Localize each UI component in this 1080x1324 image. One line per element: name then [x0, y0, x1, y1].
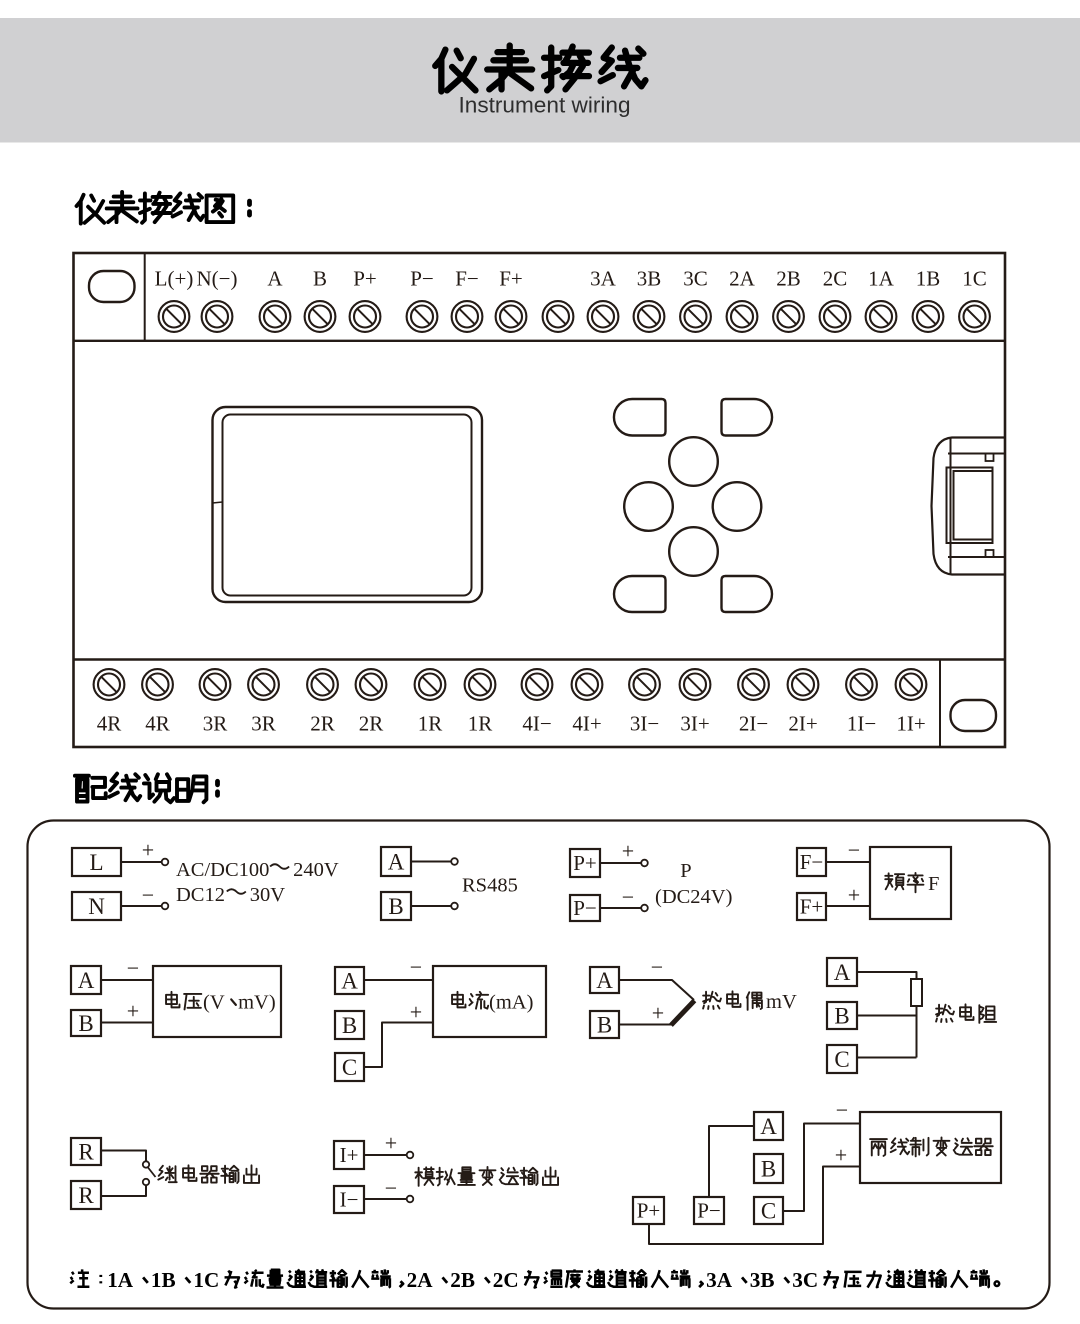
- svg-text:B: B: [834, 1003, 849, 1028]
- svg-text:R: R: [78, 1183, 94, 1208]
- svg-text:1I+: 1I+: [896, 712, 925, 736]
- svg-text:1C: 1C: [962, 267, 987, 291]
- svg-text:I−: I−: [340, 1188, 359, 1212]
- svg-text:3A: 3A: [590, 267, 617, 291]
- svg-text:4R: 4R: [97, 712, 122, 736]
- svg-text:−: −: [142, 883, 154, 908]
- svg-text:C: C: [834, 1047, 849, 1072]
- svg-text:2I−: 2I−: [739, 712, 768, 736]
- svg-text:B: B: [342, 1013, 357, 1038]
- svg-text:−: −: [385, 1176, 397, 1201]
- svg-text:+: +: [652, 1001, 664, 1026]
- svg-text:−: −: [651, 955, 663, 980]
- svg-text:−: −: [622, 885, 634, 910]
- svg-text:30V: 30V: [250, 884, 285, 906]
- svg-text:2B: 2B: [776, 267, 801, 291]
- svg-text:A: A: [596, 968, 613, 993]
- svg-text:3I+: 3I+: [680, 712, 709, 736]
- svg-text:L: L: [89, 850, 103, 875]
- svg-text:B: B: [597, 1012, 612, 1037]
- svg-text:P+: P+: [353, 267, 377, 291]
- svg-text:P−: P−: [573, 896, 597, 920]
- svg-text:A: A: [341, 968, 358, 993]
- svg-text:+: +: [835, 1143, 847, 1168]
- svg-text:F−: F−: [800, 850, 824, 874]
- svg-text:+: +: [848, 883, 860, 908]
- svg-text:2C: 2C: [493, 1268, 519, 1292]
- svg-text:F−: F−: [455, 267, 479, 291]
- svg-text:4I−: 4I−: [522, 712, 551, 736]
- svg-text:R: R: [78, 1139, 94, 1164]
- svg-text:2R: 2R: [359, 712, 384, 736]
- svg-text:(mA): (mA): [489, 992, 533, 1014]
- svg-text:DC12: DC12: [176, 884, 225, 906]
- svg-text:3A: 3A: [706, 1268, 733, 1292]
- svg-text:P+: P+: [637, 1199, 661, 1223]
- svg-text:240V: 240V: [293, 859, 339, 881]
- svg-text:1R: 1R: [418, 712, 443, 736]
- svg-text:Instrument wiring: Instrument wiring: [458, 92, 630, 117]
- svg-text:1C: 1C: [193, 1268, 219, 1292]
- svg-text:P−: P−: [410, 267, 434, 291]
- svg-text:2A: 2A: [407, 1268, 434, 1292]
- svg-text:3R: 3R: [203, 712, 228, 736]
- svg-text:+: +: [622, 839, 634, 864]
- svg-text:B: B: [78, 1011, 93, 1036]
- svg-text:C: C: [761, 1198, 776, 1223]
- svg-text:A: A: [267, 267, 283, 291]
- svg-text:1B: 1B: [151, 1268, 176, 1292]
- svg-text:3I−: 3I−: [630, 712, 659, 736]
- svg-text:3B: 3B: [637, 267, 662, 291]
- svg-text:AC/DC100: AC/DC100: [176, 859, 269, 881]
- svg-text:P+: P+: [573, 851, 597, 875]
- svg-text:3C: 3C: [683, 267, 708, 291]
- svg-text:A: A: [388, 849, 405, 874]
- svg-text:B: B: [313, 267, 327, 291]
- svg-text:−: −: [410, 955, 422, 980]
- svg-text:L(+): L(+): [155, 267, 194, 291]
- svg-text:2A: 2A: [729, 267, 756, 291]
- svg-text:1B: 1B: [916, 267, 941, 291]
- svg-text:P−: P−: [697, 1199, 721, 1223]
- svg-text:N(−): N(−): [197, 267, 238, 291]
- svg-text:A: A: [78, 968, 95, 993]
- svg-text:3B: 3B: [750, 1268, 775, 1292]
- svg-text:I+: I+: [340, 1143, 359, 1167]
- svg-text:+: +: [410, 1000, 422, 1025]
- svg-text:3R: 3R: [251, 712, 276, 736]
- svg-text:+: +: [127, 999, 139, 1024]
- svg-text:−: −: [848, 838, 860, 863]
- svg-text:+: +: [142, 838, 154, 863]
- svg-text:A: A: [760, 1114, 777, 1139]
- svg-text:F+: F+: [499, 267, 523, 291]
- svg-text:1I−: 1I−: [847, 712, 876, 736]
- svg-text:C: C: [342, 1055, 357, 1080]
- svg-text:N: N: [88, 894, 105, 919]
- svg-text:2R: 2R: [310, 712, 335, 736]
- svg-text:1A: 1A: [868, 267, 895, 291]
- svg-text:2I+: 2I+: [788, 712, 817, 736]
- svg-text:F+: F+: [800, 895, 824, 919]
- svg-text:(DC24V): (DC24V): [655, 886, 732, 908]
- svg-text:2C: 2C: [823, 267, 848, 291]
- svg-text:4R: 4R: [145, 712, 170, 736]
- svg-text:F: F: [928, 873, 939, 895]
- svg-text:P: P: [680, 860, 691, 882]
- svg-text:−: −: [127, 956, 139, 981]
- svg-text:1R: 1R: [468, 712, 493, 736]
- svg-text:B: B: [388, 894, 403, 919]
- svg-text:mV: mV: [766, 991, 797, 1013]
- svg-text:+: +: [385, 1131, 397, 1156]
- svg-text:B: B: [761, 1156, 776, 1181]
- svg-text:4I+: 4I+: [572, 712, 601, 736]
- svg-text:mV): mV): [238, 992, 276, 1014]
- svg-text:−: −: [836, 1098, 848, 1123]
- svg-text:A: A: [834, 960, 851, 985]
- svg-text:1A: 1A: [107, 1268, 134, 1292]
- svg-text:(V: (V: [203, 992, 225, 1014]
- svg-text:2B: 2B: [450, 1268, 475, 1292]
- svg-text:3C: 3C: [792, 1268, 818, 1292]
- svg-text:RS485: RS485: [462, 875, 518, 897]
